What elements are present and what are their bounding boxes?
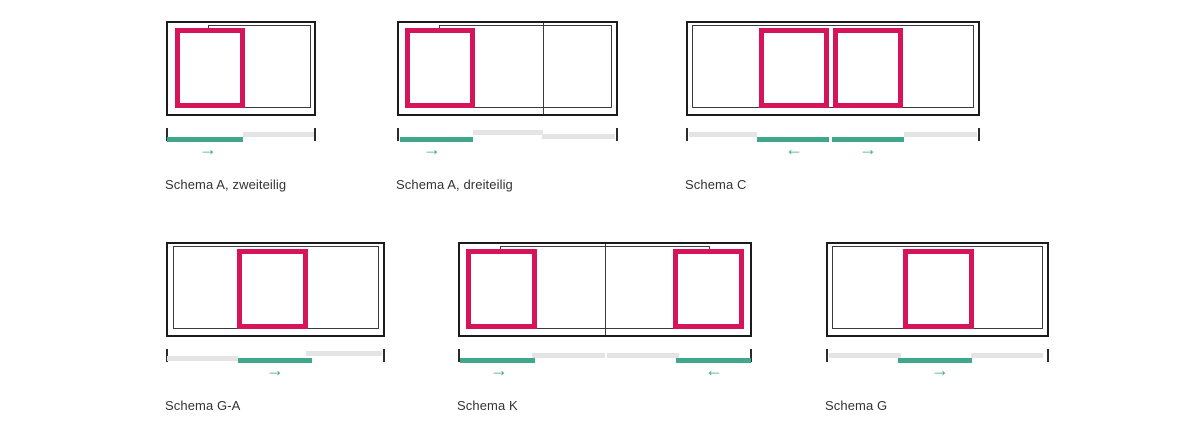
slide-track: ←→ — [686, 128, 980, 164]
door-frame — [166, 242, 385, 337]
rail-fixed-segment — [473, 130, 543, 135]
rail-fixed-segment — [542, 134, 615, 139]
arrow-right-icon: → — [423, 140, 441, 158]
rail-fixed-segment — [904, 132, 977, 137]
door-frame — [686, 21, 980, 116]
frame-divider — [605, 244, 606, 335]
slide-track: → — [166, 128, 316, 164]
schema-label: Schema G — [825, 398, 887, 413]
rail-fixed-segment — [971, 353, 1043, 358]
track-end-tick-right — [978, 128, 980, 141]
sliding-panel — [175, 28, 245, 108]
schema-label: Schema K — [457, 398, 518, 413]
arrow-right-icon: → — [266, 361, 284, 379]
sliding-panel — [833, 28, 903, 108]
sliding-panel — [237, 249, 308, 329]
rail-fixed-segment — [532, 353, 605, 358]
arrow-right-icon: → — [490, 361, 508, 379]
rail-fixed-segment — [167, 356, 238, 361]
schema-label: Schema A, zweiteilig — [165, 177, 286, 192]
slide-track: → — [166, 349, 385, 385]
sliding-panel — [759, 28, 829, 108]
slide-track: → — [826, 349, 1049, 385]
sliding-panel — [466, 249, 537, 329]
rail-fixed-segment — [689, 132, 757, 137]
arrow-left-icon: ← — [705, 361, 723, 379]
diagram-schema-g: →Schema G — [826, 242, 1049, 337]
rail-fixed-segment — [243, 132, 314, 137]
sliding-door-schemas-canvas: →Schema A, zweiteilig→Schema A, dreiteil… — [0, 0, 1200, 429]
track-end-tick-left — [826, 349, 828, 362]
door-frame — [826, 242, 1049, 337]
sliding-panel — [673, 249, 744, 329]
schema-label: Schema A, dreiteilig — [396, 177, 513, 192]
diagram-schema-a-dreiteilig: →Schema A, dreiteilig — [397, 21, 618, 116]
diagram-schema-k: →←Schema K — [458, 242, 752, 337]
sliding-panel — [405, 28, 475, 108]
rail-fixed-segment — [607, 353, 679, 358]
rail-fixed-segment — [306, 351, 382, 356]
slide-track: →← — [458, 349, 752, 385]
door-frame — [458, 242, 752, 337]
diagram-schema-a-zweiteilig: →Schema A, zweiteilig — [166, 21, 316, 116]
schema-label: Schema G-A — [165, 398, 240, 413]
frame-divider — [543, 23, 544, 114]
arrow-right-icon: → — [931, 361, 949, 379]
slide-track: → — [397, 128, 618, 164]
track-end-tick-right — [314, 128, 316, 141]
door-frame — [166, 21, 316, 116]
sliding-panel — [903, 249, 974, 329]
track-end-tick-left — [397, 128, 399, 141]
arrow-left-icon: ← — [785, 140, 803, 158]
track-end-tick-right — [383, 349, 385, 362]
arrow-right-icon: → — [859, 140, 877, 158]
track-end-tick-right — [616, 128, 618, 141]
track-end-tick-left — [686, 128, 688, 141]
track-end-tick-right — [1047, 349, 1049, 362]
arrow-right-icon: → — [199, 140, 217, 158]
rail-fixed-segment — [829, 353, 901, 358]
diagram-schema-g-a: →Schema G-A — [166, 242, 385, 337]
schema-label: Schema C — [685, 177, 747, 192]
door-frame — [397, 21, 618, 116]
diagram-schema-c: ←→Schema C — [686, 21, 980, 116]
